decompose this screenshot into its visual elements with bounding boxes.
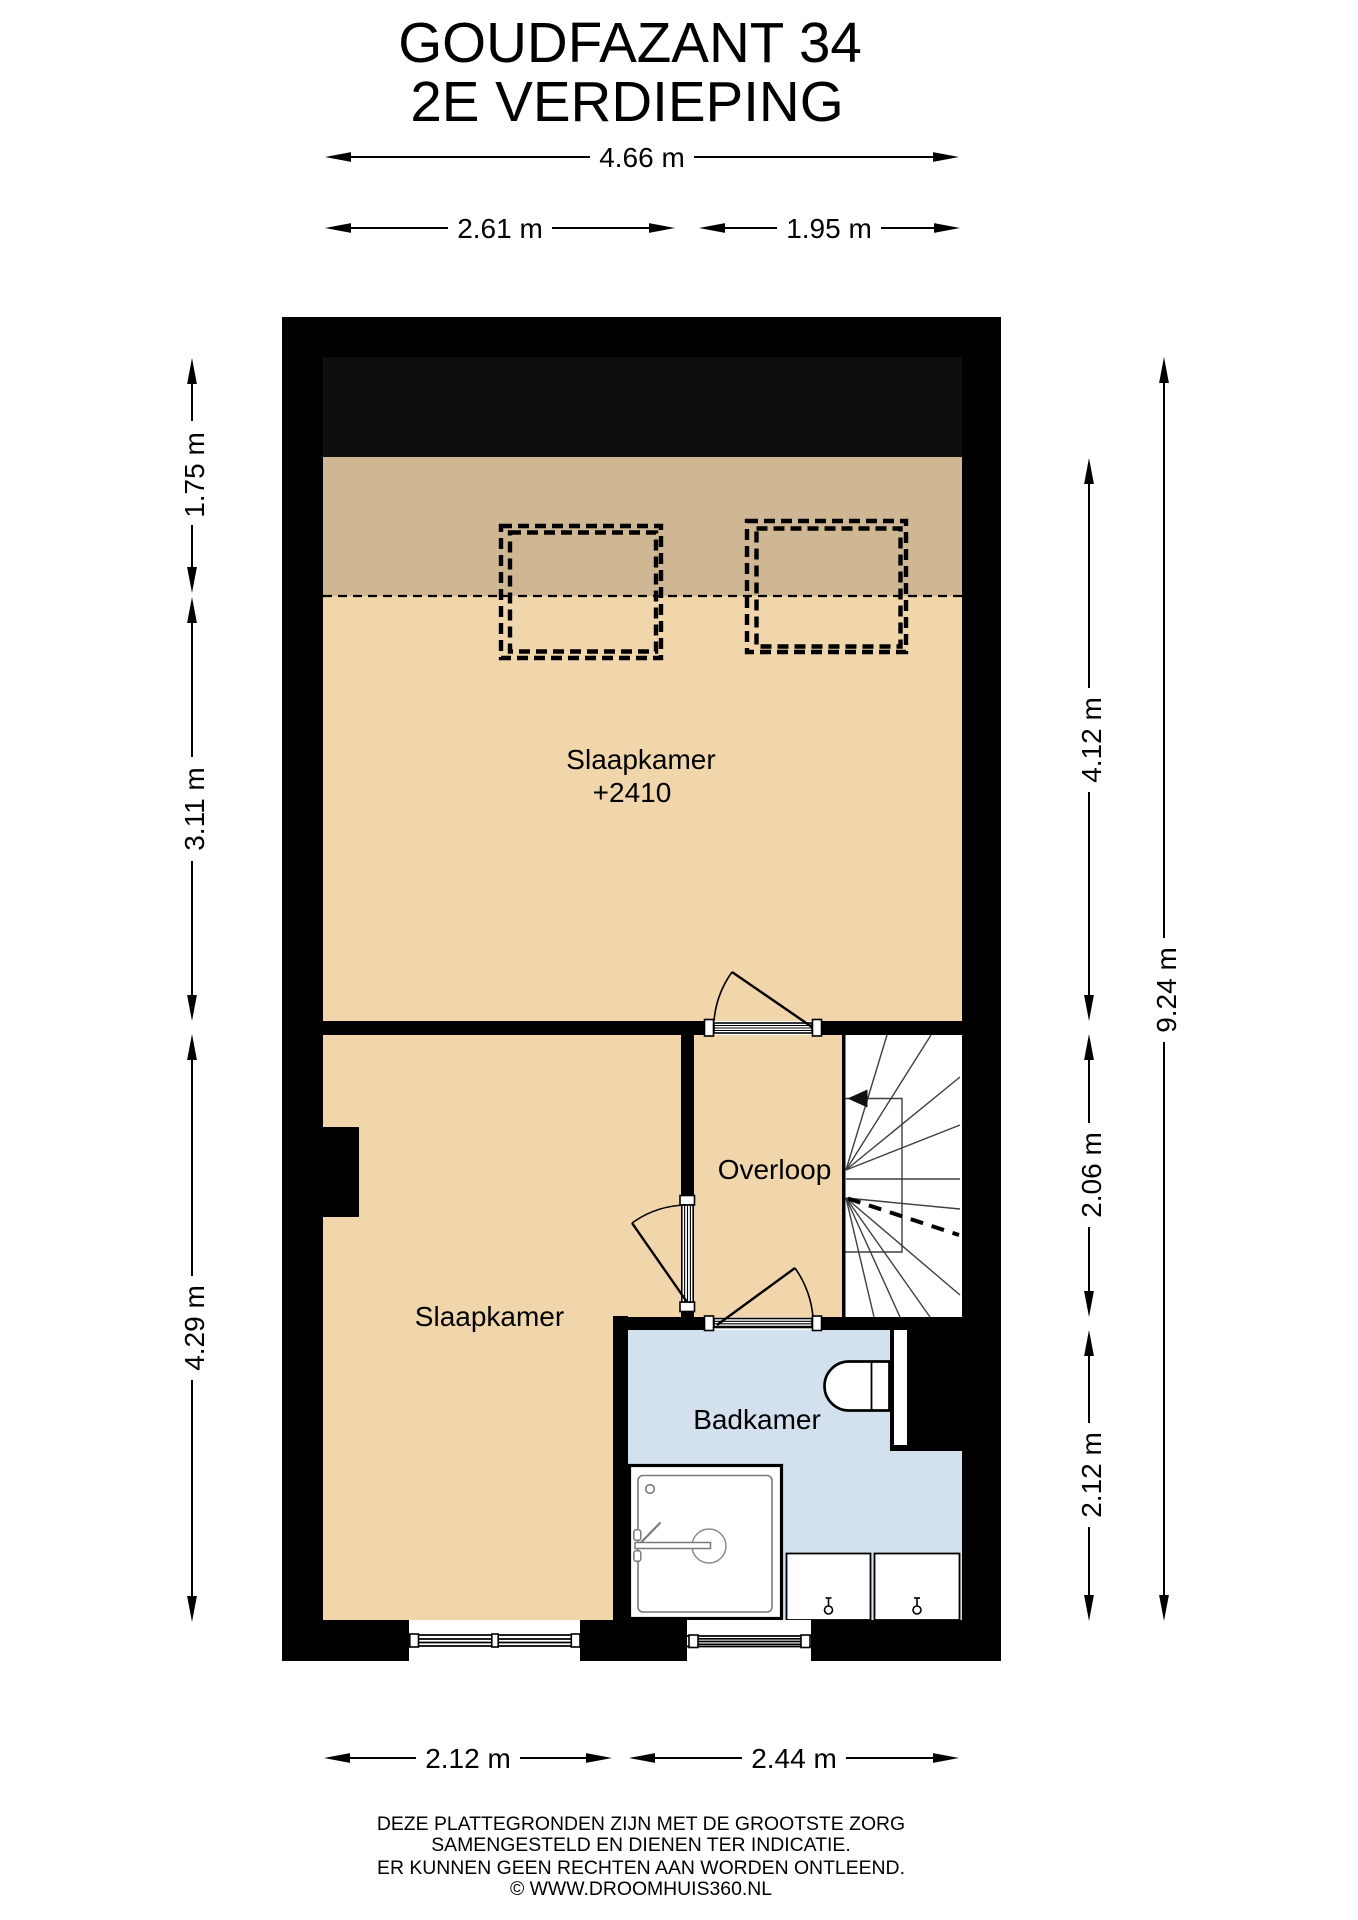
svg-text:3.11 m: 3.11 m bbox=[179, 767, 210, 851]
svg-text:2.44 m: 2.44 m bbox=[751, 1743, 837, 1774]
svg-text:+2410: +2410 bbox=[593, 777, 672, 808]
svg-text:4.66 m: 4.66 m bbox=[599, 142, 685, 173]
svg-text:DEZE PLATTEGRONDEN ZIJN MET DE: DEZE PLATTEGRONDEN ZIJN MET DE GROOTSTE … bbox=[377, 1813, 905, 1835]
svg-text:© WWW.DROOMHUIS360.NL: © WWW.DROOMHUIS360.NL bbox=[510, 1878, 772, 1900]
svg-text:1.95 m: 1.95 m bbox=[786, 213, 872, 244]
svg-text:GOUDFAZANT 34: GOUDFAZANT 34 bbox=[398, 11, 862, 74]
svg-text:2E VERDIEPING: 2E VERDIEPING bbox=[410, 70, 843, 133]
svg-text:Slaapkamer: Slaapkamer bbox=[415, 1301, 564, 1332]
svg-text:2.61 m: 2.61 m bbox=[457, 213, 543, 244]
svg-text:2.12 m: 2.12 m bbox=[1076, 1432, 1107, 1518]
svg-text:4.29 m: 4.29 m bbox=[179, 1285, 210, 1371]
svg-text:Overloop: Overloop bbox=[718, 1154, 832, 1185]
svg-text:SAMENGESTELD EN DIENEN TER IND: SAMENGESTELD EN DIENEN TER INDICATIE. bbox=[431, 1834, 850, 1856]
svg-text:Badkamer: Badkamer bbox=[693, 1404, 821, 1435]
svg-text:9.24 m: 9.24 m bbox=[1151, 947, 1182, 1033]
svg-text:2.06 m: 2.06 m bbox=[1076, 1132, 1107, 1218]
svg-text:ER KUNNEN GEEN RECHTEN AAN WOR: ER KUNNEN GEEN RECHTEN AAN WORDEN ONTLEE… bbox=[377, 1857, 905, 1879]
svg-text:1.75 m: 1.75 m bbox=[179, 432, 210, 518]
svg-text:Slaapkamer: Slaapkamer bbox=[566, 744, 715, 775]
svg-text:4.12 m: 4.12 m bbox=[1076, 697, 1107, 783]
svg-text:2.12 m: 2.12 m bbox=[425, 1743, 511, 1774]
